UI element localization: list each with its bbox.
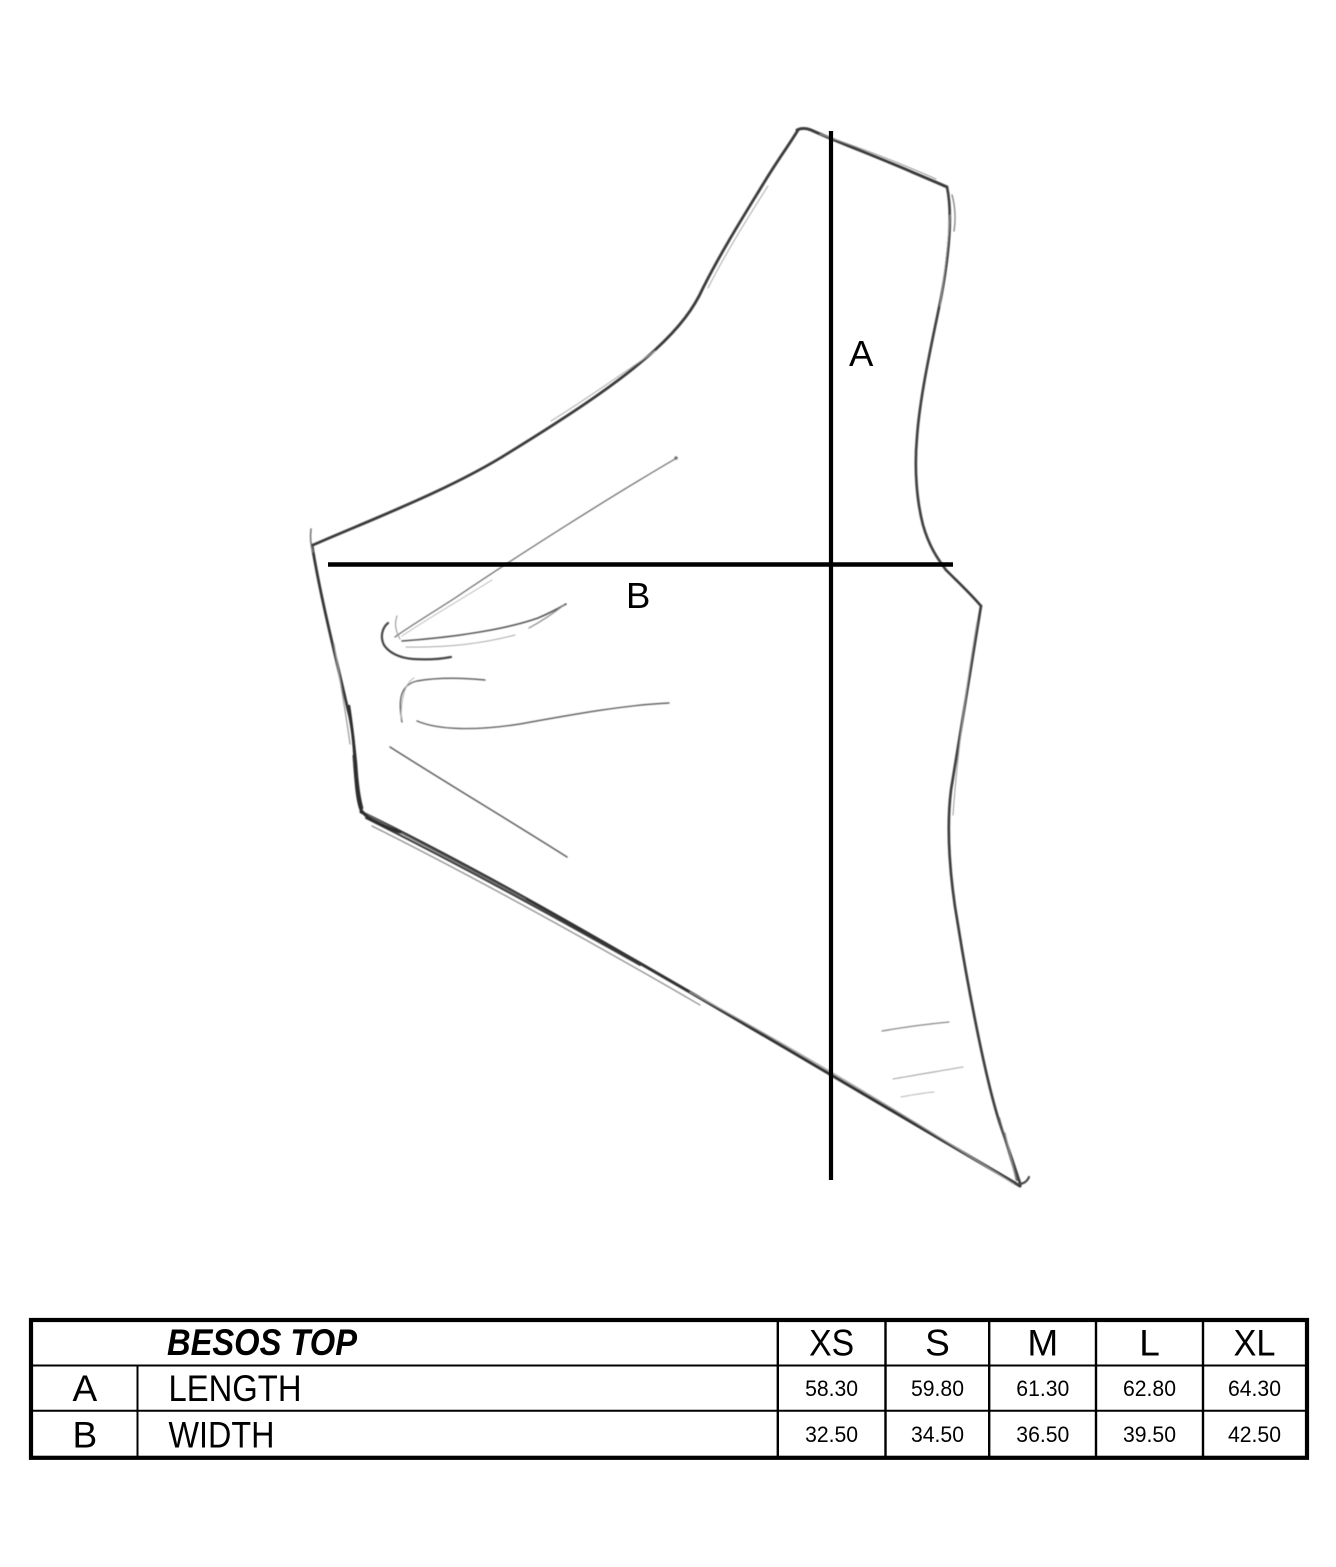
svg-text:58.30: 58.30 [805,1376,858,1401]
svg-text:XS: XS [809,1323,854,1364]
svg-text:64.30: 64.30 [1228,1376,1281,1401]
svg-text:59.80: 59.80 [911,1376,964,1401]
svg-text:L: L [1139,1323,1160,1364]
svg-text:A: A [72,1368,97,1409]
svg-text:39.50: 39.50 [1123,1422,1176,1447]
svg-text:61.30: 61.30 [1016,1376,1069,1401]
svg-text:34.50: 34.50 [911,1422,964,1447]
svg-text:M: M [1027,1323,1058,1364]
svg-text:BESOS TOP: BESOS TOP [167,1322,357,1363]
svg-text:32.50: 32.50 [805,1422,858,1447]
svg-text:36.50: 36.50 [1016,1422,1069,1447]
svg-text:62.80: 62.80 [1123,1376,1176,1401]
svg-text:XL: XL [1234,1323,1276,1364]
svg-text:S: S [925,1323,950,1364]
svg-text:LENGTH: LENGTH [169,1368,302,1409]
svg-text:WIDTH: WIDTH [169,1415,275,1456]
svg-text:B: B [72,1415,97,1456]
svg-text:B: B [626,575,650,616]
svg-text:A: A [849,333,874,374]
svg-text:42.50: 42.50 [1228,1422,1281,1447]
